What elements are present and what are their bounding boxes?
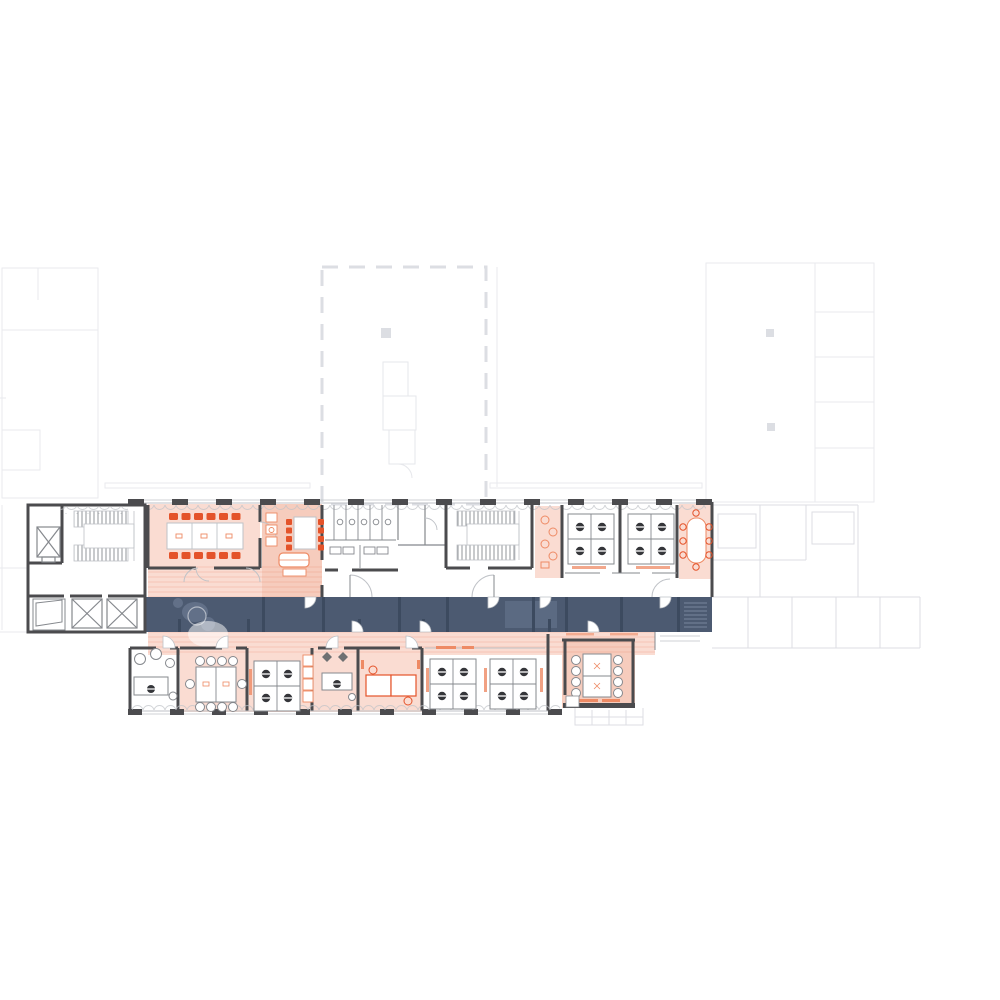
elevator-icon <box>107 599 137 628</box>
elevator-icon <box>72 599 102 628</box>
desk-pod-icon <box>490 659 536 709</box>
sink-icon <box>330 547 388 554</box>
stairwell-east <box>446 505 532 568</box>
context-wing-northcenter <box>322 267 497 504</box>
floor-plan-svg <box>0 0 1000 1000</box>
context-wing-east <box>712 505 920 648</box>
table-icon <box>687 518 706 563</box>
stairs-icon <box>74 511 134 561</box>
room-toilets <box>325 505 398 570</box>
elevator-icon <box>37 527 60 562</box>
corridor-stair-ghost <box>684 603 707 627</box>
desk-pod-icon <box>568 514 614 564</box>
door-arc-icon <box>425 518 437 530</box>
sofa-icon <box>279 553 309 576</box>
room-openoffice-south <box>425 646 545 709</box>
context-courtyard-lines <box>105 483 702 488</box>
exterior-step <box>575 708 643 725</box>
floor-plan-canvas <box>0 0 1000 1000</box>
room-office-east <box>562 505 677 578</box>
stairs-icon <box>457 511 519 560</box>
desk-pod-icon <box>628 514 674 564</box>
table-icon <box>583 654 611 697</box>
facade-north <box>128 499 712 513</box>
context-wing-northeast <box>706 263 874 502</box>
window-icon <box>146 505 706 513</box>
context-wing-northwest <box>0 268 98 632</box>
corridor-end-east <box>655 632 700 650</box>
desk-pod-icon <box>254 661 300 711</box>
core-west <box>28 505 145 632</box>
toilet-icon <box>337 519 391 525</box>
desk-pod-icon <box>430 659 476 709</box>
desk-icon <box>366 675 391 696</box>
storage-room <box>33 599 65 630</box>
desk-icon <box>391 675 416 696</box>
kitchen-counter-icon <box>266 513 277 546</box>
room-office-sw <box>134 649 177 701</box>
